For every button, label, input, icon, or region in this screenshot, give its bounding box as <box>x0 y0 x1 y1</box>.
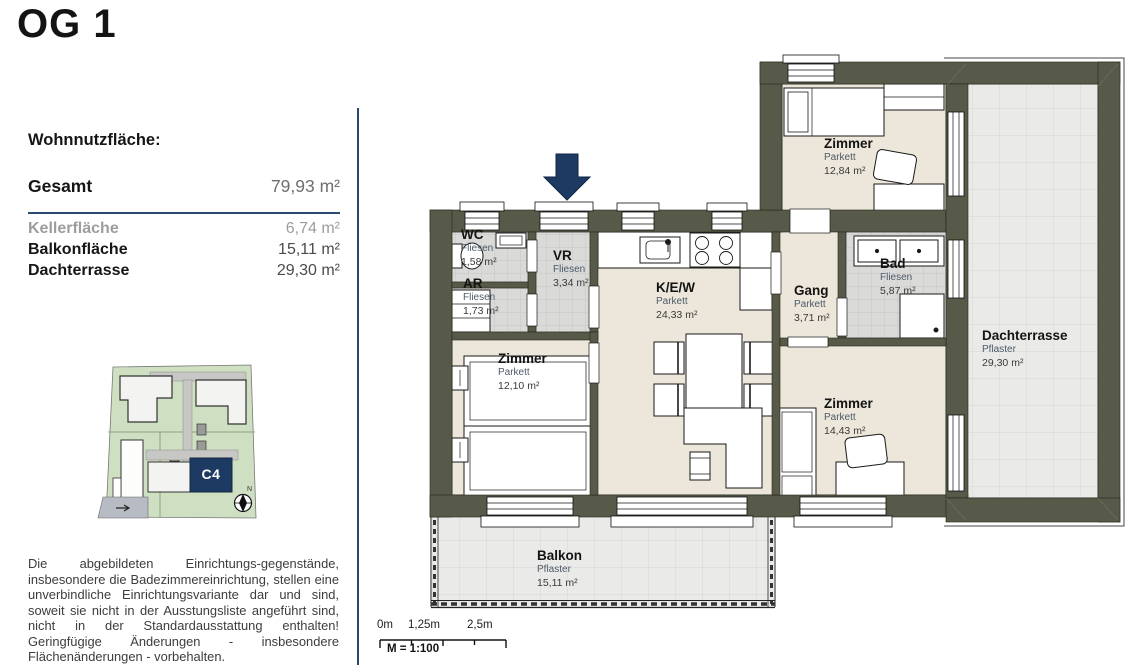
scale-ratio-label: M = 1:100 <box>387 643 439 655</box>
room-surface: Parkett <box>824 151 873 165</box>
room-name: VR <box>553 248 589 263</box>
room-label-dachterrasse: Dachterrasse Pflaster 29,30 m² <box>982 328 1068 370</box>
room-label-kew: K/E/W Parkett 24,33 m² <box>656 280 697 322</box>
furniture-chair <box>873 149 918 185</box>
floorplan-page: N <box>0 0 1146 665</box>
summary-total-value: 79,93 m² <box>271 176 340 197</box>
room-area: 29,30 m² <box>982 357 1068 370</box>
summary-row-dachterrasse: Dachterrasse 29,30 m² <box>28 260 340 281</box>
furniture-single-bed <box>784 88 884 136</box>
panel-divider <box>357 108 359 665</box>
scale-tick-1: 1,25m <box>408 619 440 631</box>
row-value: 6,74 m² <box>286 218 340 239</box>
summary-rows: Kellerfläche 6,74 m² Balkonfläche 15,11 … <box>28 218 340 281</box>
room-label-zimmer-1: Zimmer Parkett 12,10 m² <box>498 351 547 393</box>
room-label-wc: WC Fliesen 1,58 m² <box>461 227 497 269</box>
room-area: 15,11 m² <box>537 577 582 590</box>
room-label-balkon: Balkon Pflaster 15,11 m² <box>537 548 582 590</box>
room-label-ar: AR Fliesen 1,73 m² <box>463 276 499 318</box>
svg-text:N: N <box>247 486 252 493</box>
summary-heading: Wohnnutzfläche: <box>28 131 161 150</box>
room-area: 5,87 m² <box>880 285 916 298</box>
room-surface: Fliesen <box>553 263 589 277</box>
site-unit-label: C4 <box>190 466 232 482</box>
room-surface: Fliesen <box>461 242 497 256</box>
room-surface: Fliesen <box>463 291 499 305</box>
room-area: 12,84 m² <box>824 165 873 178</box>
scale-tick-2: 2,5m <box>467 619 493 631</box>
room-label-vr: VR Fliesen 3,34 m² <box>553 248 589 290</box>
page-title: OG 1 <box>17 2 117 47</box>
row-label: Kellerfläche <box>28 218 119 239</box>
room-surface: Parkett <box>656 295 697 309</box>
furniture-wardrobe-tall <box>778 408 816 500</box>
summary-row-balkon: Balkonfläche 15,11 m² <box>28 239 340 260</box>
room-surface: Pflaster <box>982 343 1068 357</box>
scale-tick-0: 0m <box>377 619 393 631</box>
row-value: 15,11 m² <box>278 239 340 260</box>
room-area: 1,58 m² <box>461 256 497 269</box>
summary-row-keller: Kellerfläche 6,74 m² <box>28 218 340 239</box>
summary-total-row: Gesamt 79,93 m² <box>28 176 340 197</box>
entrance-arrow-icon <box>544 154 590 200</box>
furniture-chair-2 <box>844 434 887 469</box>
room-label-zimmer-3: Zimmer Parkett 14,43 m² <box>824 396 873 438</box>
summary-divider <box>28 212 340 214</box>
room-name: Zimmer <box>824 136 873 151</box>
room-area: 3,34 m² <box>553 277 589 290</box>
room-label-bad: Bad Fliesen 5,87 m² <box>880 256 916 298</box>
room-area: 24,33 m² <box>656 309 697 322</box>
room-surface: Parkett <box>794 298 830 312</box>
entrance-door <box>540 212 588 230</box>
room-name: WC <box>461 227 497 242</box>
room-label-gang: Gang Parkett 3,71 m² <box>794 283 830 325</box>
site-plan: N <box>98 365 256 518</box>
row-label: Dachterrasse <box>28 260 129 281</box>
summary-total-label: Gesamt <box>28 176 92 197</box>
room-area: 12,10 m² <box>498 380 547 393</box>
room-name: AR <box>463 276 499 291</box>
room-surface: Parkett <box>824 411 873 425</box>
furniture-coffee-table <box>690 452 710 480</box>
room-surface: Fliesen <box>880 271 916 285</box>
furniture-shower <box>900 294 944 338</box>
room-name: Gang <box>794 283 830 298</box>
room-surface: Pflaster <box>537 563 582 577</box>
room-surface: Parkett <box>498 366 547 380</box>
room-area: 14,43 m² <box>824 425 873 438</box>
room-name: Zimmer <box>824 396 873 411</box>
room-label-zimmer-2: Zimmer Parkett 12,84 m² <box>824 136 873 178</box>
balcony-floor <box>431 517 775 608</box>
room-name: Dachterrasse <box>982 328 1068 343</box>
room-name: K/E/W <box>656 280 697 295</box>
room-name: Bad <box>880 256 916 271</box>
room-area: 3,71 m² <box>794 312 830 325</box>
room-name: Balkon <box>537 548 582 563</box>
row-label: Balkonfläche <box>28 239 128 260</box>
row-value: 29,30 m² <box>277 260 340 281</box>
room-area: 1,73 m² <box>463 305 499 318</box>
roof-terrace-floor <box>966 84 1098 498</box>
room-name: Zimmer <box>498 351 547 366</box>
furniture-desk-2 <box>836 462 904 498</box>
disclaimer-text: Die abgebildeten Einrichtungs-gegenständ… <box>28 556 339 665</box>
